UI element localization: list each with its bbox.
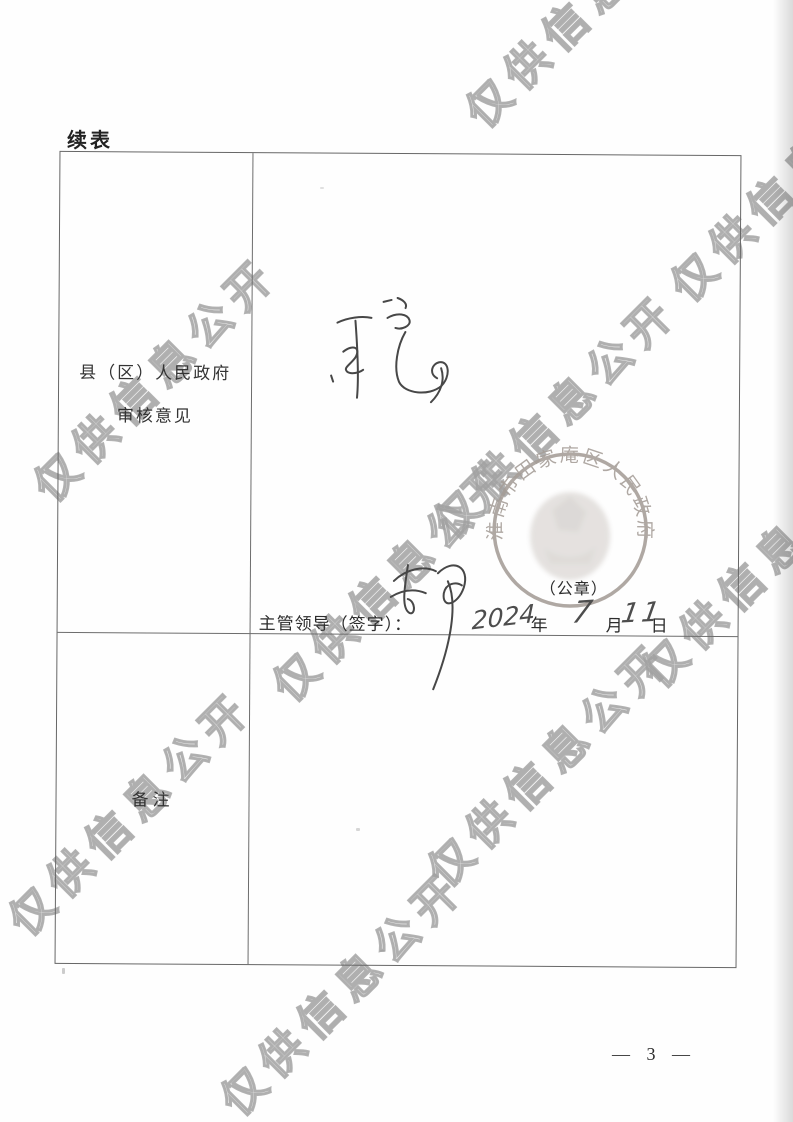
review-opinion-content-cell: 淮南市田家庵区人民政府 （公章） 主管领导（签字）： 2024 年 7 月 11	[251, 153, 740, 636]
scanned-document-page: 仅供信息公开仅供信息公开仅供信息公开仅供信息公开仅供信息公开仅供信息公开仅供信息…	[0, 0, 793, 1122]
scanner-edge-shadow	[773, 0, 793, 1122]
scan-speck	[356, 828, 360, 831]
year-unit-label: 年	[531, 611, 548, 636]
remarks-label: 备注	[131, 785, 173, 810]
day-unit-label: 日	[651, 612, 668, 637]
remarks-content-cell	[249, 633, 737, 966]
approval-table: 县（区）人民政府 审核意见	[55, 151, 742, 968]
remarks-header-cell: 备注	[56, 632, 250, 963]
scan-speck	[380, 950, 385, 952]
seal-caption: （公章）	[514, 575, 634, 600]
continued-table-label: 续表	[67, 124, 113, 153]
signature-date-line: 主管领导（签字）： 2024 年 7 月 11 日	[251, 599, 737, 636]
seal-emblem	[530, 492, 611, 580]
handwritten-year-value: 2024	[472, 599, 536, 636]
review-opinion-header-cell: 县（区）人民政府 审核意见	[58, 152, 253, 633]
leader-signature-label: 主管领导（签字）：	[259, 609, 413, 635]
review-opinion-label-line2: 审核意见	[117, 401, 193, 426]
review-opinion-label-line1: 县（区）人民政府	[79, 358, 231, 384]
scan-speck	[320, 187, 324, 189]
handwritten-approval-note	[317, 276, 468, 417]
watermark-text: 仅供信息公开	[457, 0, 721, 138]
page-number: — 3 —	[612, 1044, 696, 1065]
scan-speck	[62, 968, 65, 974]
